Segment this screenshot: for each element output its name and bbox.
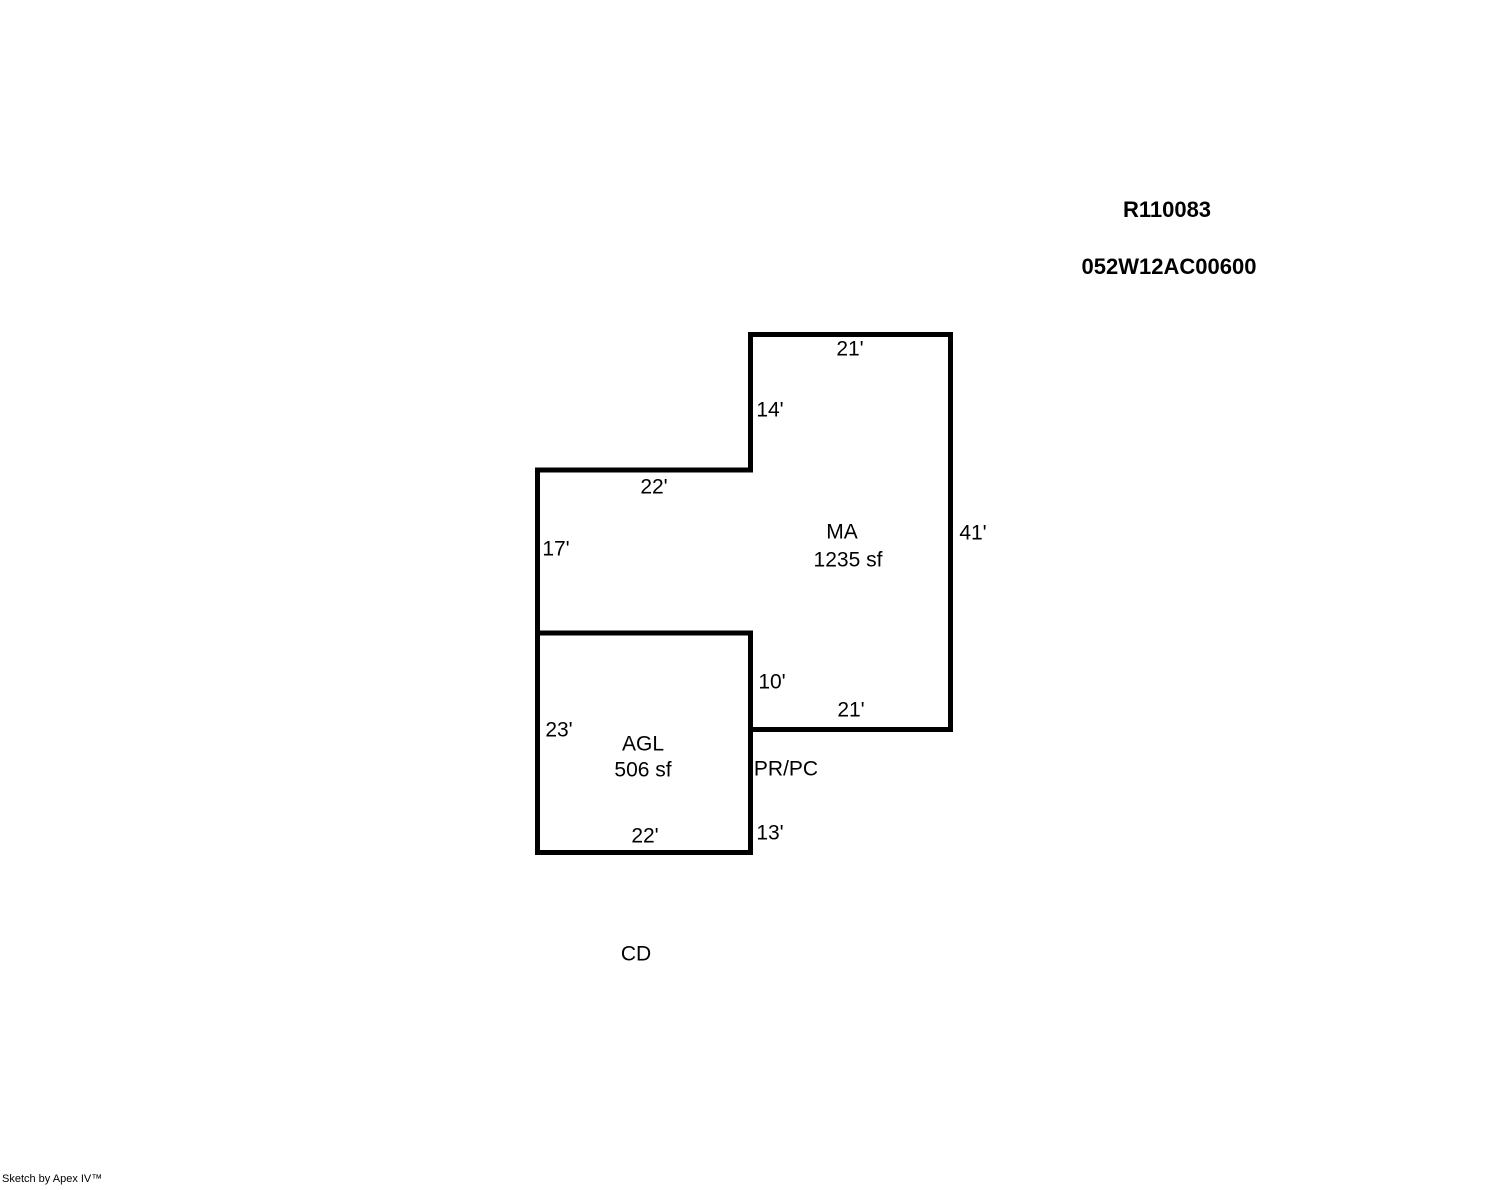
dim-wing-left-height: 17' xyxy=(542,539,569,560)
dim-ma-right-height: 41' xyxy=(959,523,986,544)
parcel-id: 052W12AC00600 xyxy=(1082,256,1257,278)
dim-ma-bottom-width: 21' xyxy=(837,700,864,721)
annotation-pr-pc: PR/PC xyxy=(754,759,818,780)
dim-ma-upper-left-height: 14' xyxy=(756,400,783,421)
floorplan-sketch xyxy=(0,0,1488,1190)
ma-area-outline xyxy=(538,335,951,730)
dim-agl-bottom-width: 22' xyxy=(631,826,658,847)
dim-agl-right-height: 13' xyxy=(756,823,783,844)
dim-ma-top-width: 21' xyxy=(836,339,863,360)
record-id: R110083 xyxy=(1123,199,1211,221)
ma-area-code: MA xyxy=(826,522,858,543)
dim-agl-left-height: 23' xyxy=(545,720,572,741)
sketch-credit: Sketch by Apex IV™ xyxy=(2,1173,102,1186)
dim-notch-height: 10' xyxy=(758,672,785,693)
ma-area-size: 1235 sf xyxy=(814,550,883,571)
dim-wing-top-width: 22' xyxy=(640,477,667,498)
agl-area-code: AGL xyxy=(622,734,664,755)
sketch-page: R110083 052W12AC00600 21' 14' 22' 17' 41… xyxy=(0,0,1488,1190)
annotation-cd: CD xyxy=(621,944,651,965)
agl-area-size: 506 sf xyxy=(614,760,671,781)
